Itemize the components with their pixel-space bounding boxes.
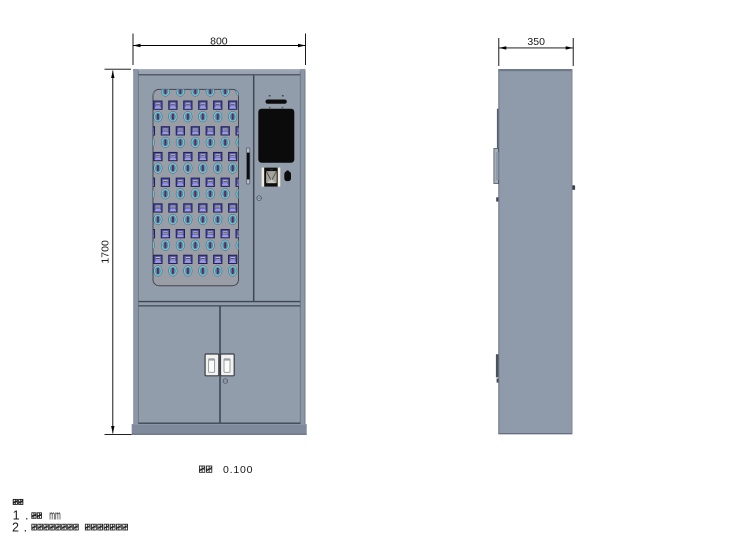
svg-text:0.100: 0.100: [223, 464, 253, 476]
svg-text:2 .: 2 .: [12, 520, 28, 534]
svg-text:350: 350: [527, 36, 545, 48]
svg-text:1700: 1700: [100, 240, 112, 264]
svg-text:mm: mm: [49, 510, 61, 524]
svg-text:800: 800: [210, 35, 228, 47]
